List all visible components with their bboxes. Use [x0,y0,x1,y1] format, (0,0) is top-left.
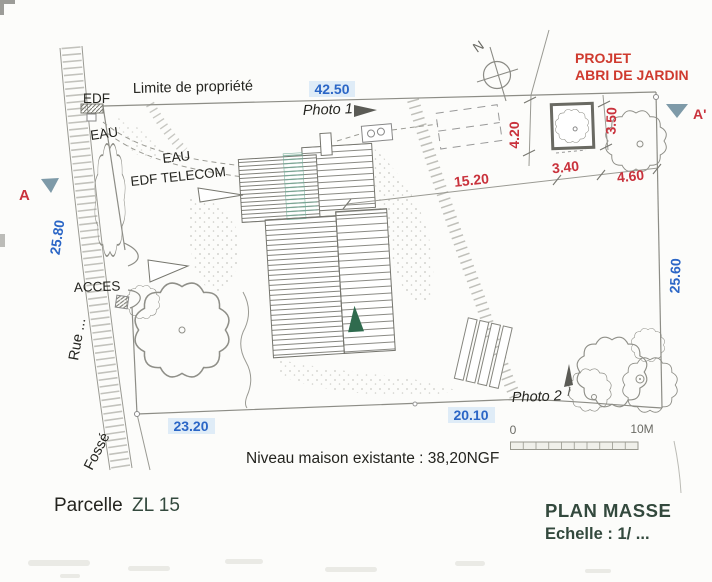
project-label-line1: PROJET [575,50,631,66]
dim-house-to-shed: 15.20 [453,170,490,190]
corner-node [654,95,659,100]
ditch-label: Fossé [81,430,113,472]
shed-dashes [556,150,586,153]
photo1-label: Photo 1 [303,101,354,119]
roof-teal-detail [303,200,318,214]
garden-strips [454,318,512,389]
fence-line [529,30,549,166]
dim-shed-to-corner: 4.60 [616,167,645,186]
dim-shed-width: 3.40 [551,158,580,177]
dim-rear-right: 20.10 [453,407,488,423]
parcel-value: ZL 15 [132,495,180,516]
dim-shed-offset: 4.20 [506,121,522,148]
project-label-line2: ABRI DE JARDIN [575,67,689,83]
level-note: Niveau maison existante : 38,20NGF [246,450,499,467]
north-letter: N [470,38,487,56]
plan-title: PLAN MASSE [545,500,671,521]
section-arrow-a [41,178,59,193]
access-label: ACCES [74,278,121,295]
septic-tank [361,124,392,143]
corner-node [135,412,140,417]
edf-label: EDF [83,91,110,106]
photo1-arrow-icon [354,105,377,117]
scale-bar: 0 10M [510,422,654,450]
dashed-structure [436,105,502,149]
existing-house-roof [237,130,395,359]
utility-run [337,134,360,141]
property-limit-label: Limite de propriété [133,78,253,97]
section-start-label: A [19,187,30,204]
edf-telecom-label: EDF TELECOM [130,164,227,189]
scale-zero-label: 0 [510,423,517,437]
garden-shed [551,103,594,148]
dim-rear-left: 23.20 [173,418,208,434]
boundary-node [413,402,417,406]
eau-mid-label: EAU [162,148,191,166]
dim-front: 42.50 [314,81,349,97]
scale-max-label: 10M [630,422,653,436]
street-label: Rue ... [66,317,89,362]
plan-scale-label: Echelle : 1/ ... [545,525,650,543]
north-compass: N [470,38,518,101]
section-end-label: A' [693,106,706,122]
dim-left: 25.80 [47,219,68,256]
hedge-line [241,292,251,408]
edf-small-box [87,114,96,121]
eau-top-label: EAU [89,124,119,143]
dim-shed-depth: 3.50 [603,107,620,135]
photo2-arrow-icon [564,364,573,396]
roof-teal-section [283,153,306,220]
large-tree [135,283,229,377]
section-arrow-a-prime [666,104,688,118]
chimney [320,133,332,156]
dim-right: 25.60 [666,258,683,294]
site-plan-drawing: N 0 10M Limite de propriété 42.50 Phot [0,0,712,582]
scanned-site-plan-page: N 0 10M Limite de propriété 42.50 Phot [0,0,712,582]
photo2-label: Photo 2 [512,388,563,406]
parcel-label: Parcelle [54,495,123,516]
